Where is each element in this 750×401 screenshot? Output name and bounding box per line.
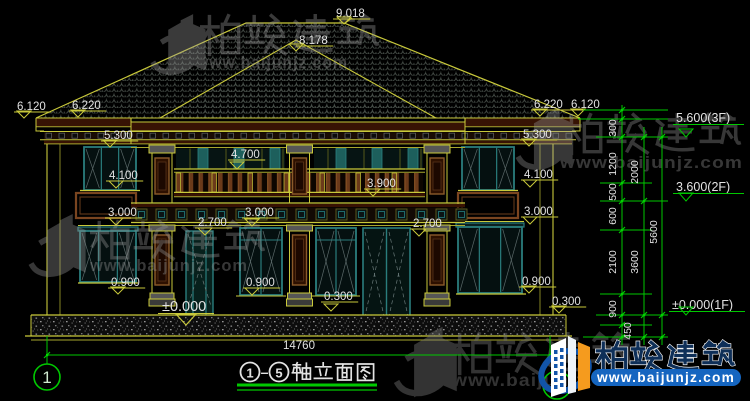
svg-text:1: 1 — [42, 368, 51, 387]
svg-text:300: 300 — [607, 119, 619, 137]
svg-text:www.baijunjz.com: www.baijunjz.com — [559, 153, 743, 172]
svg-text:5.600(3F): 5.600(3F) — [676, 111, 730, 125]
svg-text:900: 900 — [607, 300, 619, 318]
svg-text:450: 450 — [622, 322, 634, 340]
svg-text:3.000: 3.000 — [108, 207, 137, 219]
svg-text:1200: 1200 — [607, 152, 619, 176]
svg-text:3600: 3600 — [629, 250, 641, 274]
svg-text:14760: 14760 — [283, 340, 315, 352]
svg-text:3.600(2F): 3.600(2F) — [676, 180, 730, 194]
svg-text:3.000: 3.000 — [245, 207, 274, 219]
svg-text:2.700: 2.700 — [413, 218, 442, 230]
svg-text:–: – — [261, 364, 269, 380]
svg-text:8.178: 8.178 — [299, 35, 328, 47]
svg-text:4.100: 4.100 — [524, 169, 553, 181]
svg-text:2100: 2100 — [607, 250, 619, 274]
svg-text:3.000: 3.000 — [524, 206, 553, 218]
svg-text:0.900: 0.900 — [246, 277, 275, 289]
svg-text:2000: 2000 — [629, 160, 641, 184]
svg-text:1: 1 — [246, 366, 253, 381]
svg-text:www.baijunjz.com: www.baijunjz.com — [195, 54, 348, 72]
svg-text:0.300: 0.300 — [324, 291, 353, 303]
svg-text:4.100: 4.100 — [109, 170, 138, 182]
svg-text:500: 500 — [607, 183, 619, 201]
svg-text:www.baijunjz.com: www.baijunjz.com — [89, 257, 248, 275]
svg-text:600: 600 — [607, 207, 619, 225]
svg-text:2.700: 2.700 — [198, 217, 227, 229]
svg-text:5: 5 — [275, 366, 282, 381]
svg-text:www.baijunjz.com: www.baijunjz.com — [596, 370, 735, 385]
svg-text:5600: 5600 — [648, 220, 660, 244]
svg-text:4.700: 4.700 — [231, 149, 260, 161]
svg-text:±0.000: ±0.000 — [162, 299, 206, 315]
svg-text:3.900: 3.900 — [367, 178, 396, 190]
